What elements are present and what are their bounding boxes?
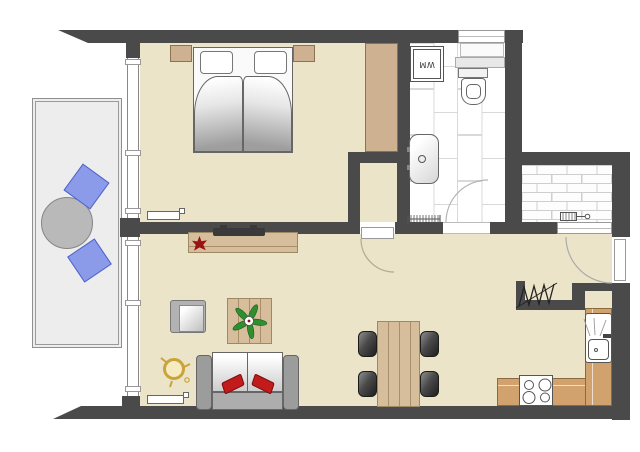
sink-drain	[594, 348, 598, 352]
wardrobe	[365, 43, 398, 152]
bathroom-shelf	[455, 57, 505, 68]
wall-bathroom-right	[505, 30, 522, 222]
nightstand	[170, 45, 192, 62]
stove	[519, 375, 553, 406]
window-mullion	[125, 300, 141, 306]
floor-plan: WM	[0, 0, 640, 452]
armchair	[170, 300, 206, 333]
window-recess	[460, 43, 504, 57]
radiator-valve	[183, 392, 189, 398]
wall-closet-top	[348, 152, 403, 163]
washing-machine-label: WM	[419, 60, 435, 69]
wall-stub-top-left	[126, 43, 140, 58]
toilet-bowl	[466, 84, 481, 99]
tv	[213, 228, 265, 236]
sofa-armrest	[283, 355, 299, 410]
washbasin-faucet	[418, 155, 426, 163]
wall-segment	[490, 222, 557, 234]
toilet	[461, 78, 486, 105]
wall-bedroom-bathroom	[397, 30, 410, 234]
closet-floor	[360, 163, 398, 222]
radiator-valve	[179, 208, 185, 214]
wall-bottom	[53, 406, 630, 419]
washbasin-tap-handle	[407, 165, 410, 170]
dining-chair	[358, 371, 377, 397]
dining-table	[377, 321, 420, 407]
kitchen-alcove-floor	[585, 291, 612, 308]
bathroom-window	[458, 30, 505, 43]
window-mullion	[125, 240, 141, 246]
window-mullion	[125, 386, 141, 392]
wall-alcove-top	[585, 283, 612, 291]
window-mullion	[125, 150, 141, 156]
sofa	[196, 352, 299, 410]
bed-pillow	[200, 51, 233, 74]
window-mullion	[125, 208, 141, 214]
washbasin	[409, 134, 439, 184]
bed-duvet	[243, 76, 292, 152]
living-room-radiator	[147, 395, 184, 404]
dining-chair	[420, 371, 439, 397]
toilet-cistern	[458, 68, 488, 78]
wall-top	[58, 30, 523, 43]
bathroom-doorway	[443, 222, 490, 234]
floor-lamp	[163, 358, 185, 380]
wall-right-upper	[612, 152, 630, 237]
armchair-seat	[179, 305, 204, 332]
living-window-glazing	[127, 237, 139, 396]
window-pane-line	[558, 228, 611, 229]
living-room-window	[557, 222, 612, 234]
coffee-table	[227, 298, 272, 344]
washing-machine: WM	[410, 46, 444, 82]
bedroom-window-glazing	[127, 57, 139, 218]
wall-kitchen-nook	[516, 300, 580, 310]
dining-chair	[358, 331, 377, 357]
kitchen-sink-unit	[585, 313, 612, 363]
entrance-door-leaf	[614, 239, 626, 281]
closet-door-leaf	[361, 227, 394, 239]
wall-kitchen-nook-right	[572, 283, 585, 310]
nightstand	[293, 45, 315, 62]
sink-faucet	[603, 334, 611, 338]
porch-floor	[522, 165, 612, 222]
window-mullion	[125, 59, 141, 65]
double-bed	[193, 47, 293, 153]
bed-duvet	[194, 76, 243, 152]
dining-chair	[420, 331, 439, 357]
bedroom-radiator	[147, 211, 180, 220]
wall-right-lower	[612, 283, 630, 420]
window-pane-line	[459, 36, 504, 37]
wall-closet-left	[348, 152, 360, 234]
sofa-seat-divider	[247, 352, 248, 392]
sink-basin	[588, 339, 609, 360]
sideboard-edge-line	[189, 246, 297, 247]
porch-brick-pattern	[522, 165, 612, 222]
washbasin-tap-handle	[407, 147, 410, 152]
bed-pillow	[254, 51, 287, 74]
sofa-armrest	[196, 355, 212, 410]
sofa-backrest	[212, 392, 283, 410]
